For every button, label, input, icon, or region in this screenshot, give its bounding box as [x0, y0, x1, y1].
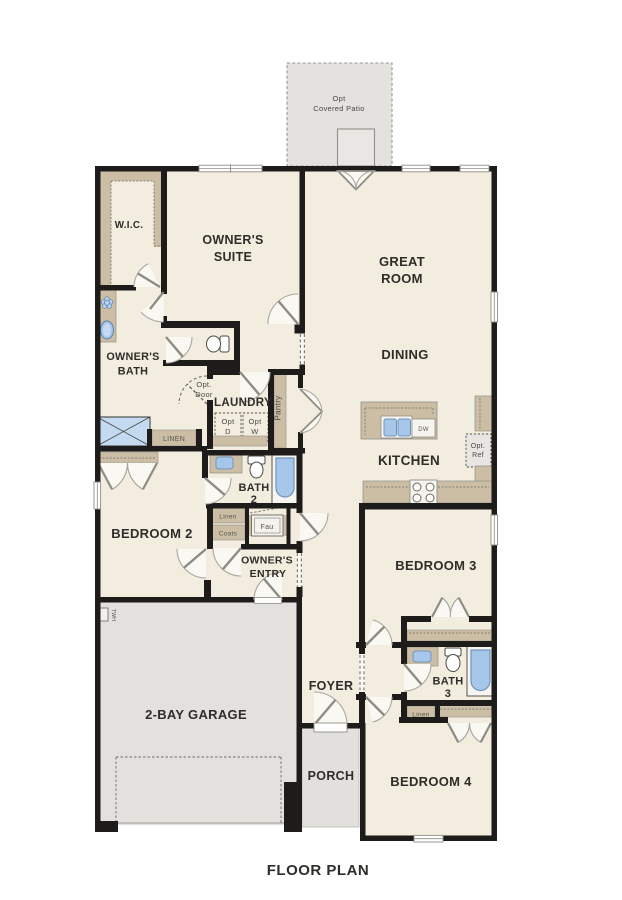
- svg-text:OWNER'S: OWNER'S: [241, 555, 293, 567]
- svg-text:BATH: BATH: [433, 676, 464, 688]
- svg-text:DINING: DINING: [381, 347, 428, 362]
- svg-text:BEDROOM 4: BEDROOM 4: [390, 774, 472, 789]
- svg-text:D: D: [225, 427, 231, 436]
- svg-text:DW: DW: [418, 427, 429, 433]
- svg-text:ROOM: ROOM: [381, 271, 423, 286]
- svg-text:BEDROOM 2: BEDROOM 2: [111, 526, 192, 541]
- svg-text:SUITE: SUITE: [214, 250, 252, 264]
- svg-text:2: 2: [251, 494, 257, 506]
- svg-text:ENTRY: ENTRY: [250, 568, 287, 580]
- svg-text:LINEN: LINEN: [163, 436, 185, 443]
- svg-text:PORCH: PORCH: [308, 769, 355, 783]
- svg-text:KITCHEN: KITCHEN: [378, 453, 440, 468]
- svg-text:BATH: BATH: [118, 366, 148, 378]
- svg-text:Covered Patio: Covered Patio: [313, 104, 364, 113]
- svg-text:OWNER'S: OWNER'S: [106, 351, 159, 363]
- svg-text:W.I.C.: W.I.C.: [115, 220, 143, 231]
- svg-text:Opt: Opt: [222, 417, 236, 426]
- svg-text:2-BAY GARAGE: 2-BAY GARAGE: [145, 707, 247, 722]
- svg-text:LAUNDRY: LAUNDRY: [214, 397, 272, 409]
- svg-text:TWH: TWH: [110, 609, 116, 621]
- svg-text:FLOOR PLAN: FLOOR PLAN: [267, 862, 370, 879]
- svg-text:Ref: Ref: [472, 452, 484, 459]
- svg-text:BEDROOM 3: BEDROOM 3: [395, 558, 476, 573]
- svg-text:Fau: Fau: [261, 524, 274, 531]
- svg-text:GREAT: GREAT: [379, 254, 425, 269]
- svg-text:Opt.: Opt.: [471, 443, 485, 450]
- svg-text:3: 3: [445, 688, 451, 700]
- svg-text:Opt: Opt: [249, 417, 263, 426]
- svg-text:Door: Door: [195, 390, 213, 399]
- svg-text:BATH: BATH: [239, 482, 270, 494]
- svg-text:Coats: Coats: [219, 531, 238, 538]
- svg-text:Linen: Linen: [219, 514, 236, 521]
- svg-text:Pantry: Pantry: [274, 396, 283, 421]
- svg-text:Opt.: Opt.: [196, 380, 211, 389]
- svg-text:W: W: [251, 427, 259, 436]
- svg-text:Opt: Opt: [333, 94, 347, 103]
- svg-text:FOYER: FOYER: [309, 679, 354, 693]
- svg-text:OWNER'S: OWNER'S: [202, 233, 263, 247]
